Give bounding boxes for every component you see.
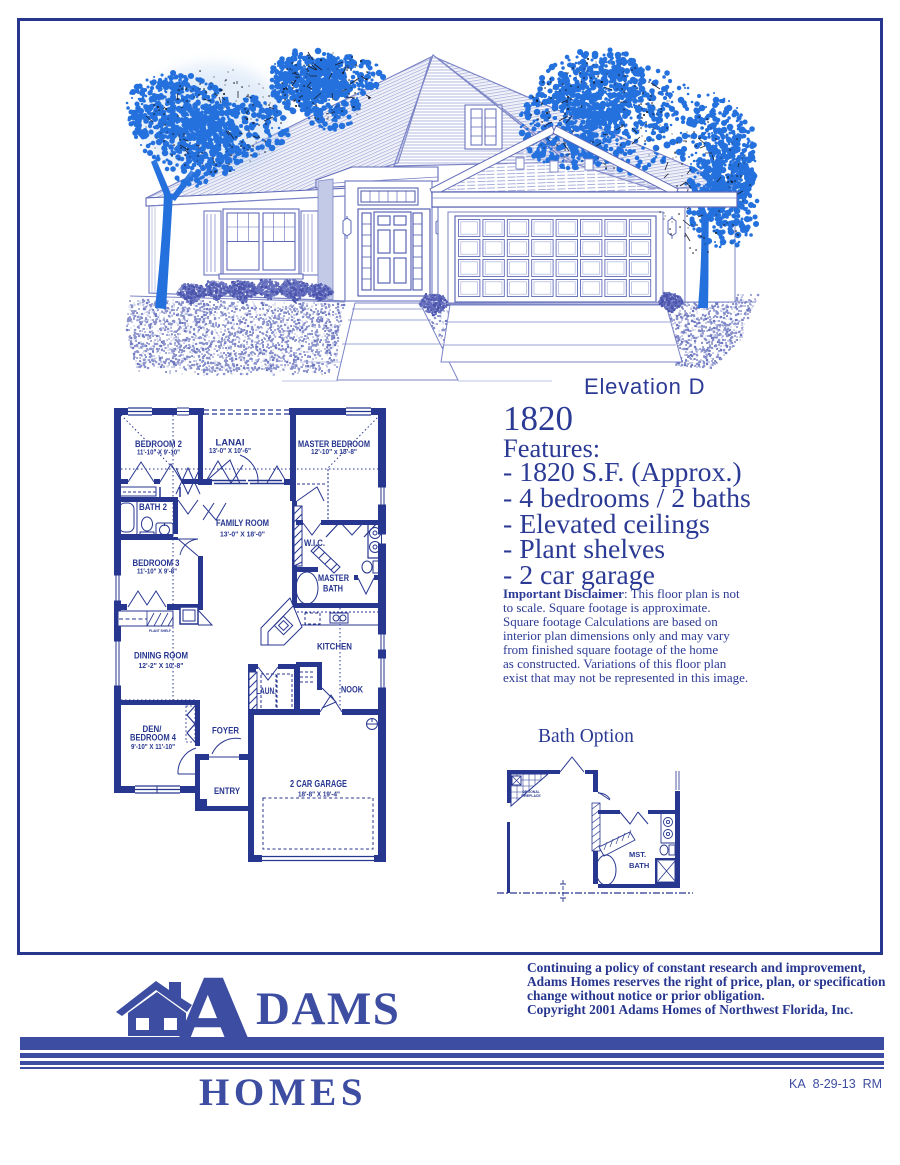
svg-text:DAMS: DAMS [256, 983, 400, 1035]
svg-text:2 CAR GARAGE: 2 CAR GARAGE [290, 779, 347, 790]
svg-text:DINING ROOM: DINING ROOM [134, 651, 188, 662]
svg-text:FOYER: FOYER [212, 726, 239, 737]
svg-text:PLANT SHELF: PLANT SHELF [149, 628, 171, 633]
svg-text:BEDROOM 4: BEDROOM 4 [130, 733, 177, 744]
svg-text:BEDROOM 2: BEDROOM 2 [135, 439, 182, 450]
svg-text:13'-0" X 18'-0": 13'-0" X 18'-0" [220, 532, 265, 539]
svg-text:FIREPLACE: FIREPLACE [521, 794, 541, 798]
svg-text:11'-10" X 9'-10": 11'-10" X 9'-10" [137, 450, 180, 457]
svg-text:BATH: BATH [323, 584, 343, 594]
svg-text:12'-2" X 10'-8": 12'-2" X 10'-8" [139, 663, 184, 670]
svg-text:NOOK: NOOK [341, 685, 363, 696]
svg-text:MASTER: MASTER [318, 573, 349, 583]
svg-text:HOMES: HOMES [199, 1071, 367, 1114]
svg-text:18'-8" X 19'-4": 18'-8" X 19'-4" [298, 792, 340, 799]
svg-text:LANAI: LANAI [216, 438, 245, 449]
svg-text:LAUN.: LAUN. [256, 686, 276, 696]
svg-text:BATH: BATH [629, 861, 649, 870]
svg-text:W.I.C.: W.I.C. [304, 538, 325, 548]
svg-text:BEDROOM 3: BEDROOM 3 [133, 558, 180, 569]
svg-text:9'-10" X 11'-10": 9'-10" X 11'-10" [131, 744, 175, 751]
svg-text:MST.: MST. [629, 850, 646, 859]
svg-text:12'-10" x 15'-8": 12'-10" x 15'-8" [311, 449, 357, 456]
svg-text:ENTRY: ENTRY [214, 786, 241, 797]
svg-text:KITCHEN: KITCHEN [317, 642, 352, 653]
svg-text:BATH 2: BATH 2 [139, 502, 167, 512]
svg-text:11'-10" X 9'-8": 11'-10" X 9'-8" [137, 569, 177, 576]
svg-text:FAMILY ROOM: FAMILY ROOM [216, 518, 269, 529]
svg-text:13'-0" X 10'-6": 13'-0" X 10'-6" [209, 448, 251, 455]
